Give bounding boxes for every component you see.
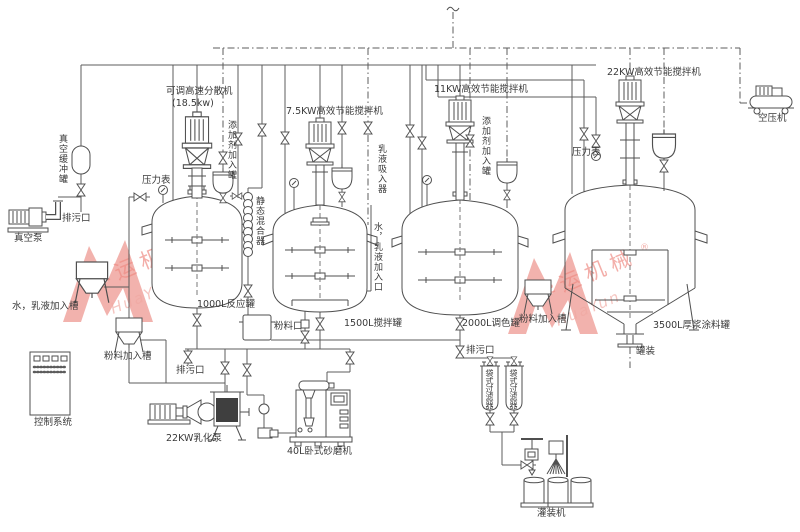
label-bag-filter-1: 袋式过滤器: [485, 369, 493, 409]
label-pressure-gauge-right: 压力表: [572, 148, 601, 159]
valve-icon: [244, 285, 252, 297]
control-panel: [30, 352, 70, 415]
valve-icon: [511, 357, 517, 365]
label-disperser-power: (18.5kw): [172, 99, 214, 110]
valve-icon: [221, 362, 229, 374]
valve-icon: [660, 160, 668, 172]
additive-vessel-3: [497, 158, 517, 183]
vent-break-icon: [447, 7, 459, 11]
drum: [524, 477, 544, 503]
label-air-compressor: 空压机: [758, 114, 787, 125]
valve-icon: [418, 137, 426, 149]
process-flow-diagram: 华运机械 ® HuaYun 华运机械 ® HuaYun: [0, 0, 800, 532]
label-powder-inlet: 粉料口: [274, 322, 303, 333]
air-compressor: [748, 86, 794, 114]
label-additive-vessel-3: 添加剂加入罐: [480, 116, 489, 176]
valve-icon: [406, 125, 414, 137]
label-emulsion-suction: 乳液吸入器: [376, 144, 385, 194]
valve-icon: [281, 132, 289, 144]
label-emulsify-pump: 22KW乳化泵: [166, 434, 222, 445]
valve-icon: [339, 192, 345, 202]
transfer-box: [239, 315, 275, 340]
valve-icon: [258, 124, 266, 136]
valve-icon: [504, 190, 510, 200]
label-filling-machine: 灌装机: [537, 509, 566, 520]
valve-icon: [316, 318, 324, 330]
label-water-emulsion-hopper: 水，乳液加入槽: [12, 302, 79, 313]
filling-machine: [521, 435, 593, 507]
valve-icon: [77, 184, 85, 196]
label-water-emulsion-inlet: 水，乳液加入口: [372, 222, 381, 292]
valve-icon: [184, 351, 192, 363]
drum: [548, 477, 568, 503]
valve-icon: [487, 357, 493, 365]
valve-icon: [456, 346, 464, 358]
watermark-reg: ®: [640, 243, 649, 253]
diagram-canvas: 华运机械 ® HuaYun 华运机械 ® HuaYun: [0, 0, 800, 532]
emulsify-pump: [148, 385, 249, 440]
label-static-mixer: 静态混合器: [254, 196, 263, 246]
vacuum-pump: [8, 201, 63, 232]
label-powder-hopper-right: 粉料加入槽: [519, 315, 567, 326]
valve-icon: [346, 352, 354, 364]
pressure-gauge-icon: [290, 179, 299, 188]
valve-icon: [232, 193, 242, 199]
label-control-system: 控制系统: [34, 418, 72, 429]
valve-icon: [364, 122, 372, 134]
label-canning: 罐装: [636, 347, 655, 358]
drum: [571, 477, 591, 503]
label-mixer-22kw: 22KW高效节能搅拌机: [607, 68, 701, 79]
valve-icon: [510, 413, 518, 425]
label-tank-1000l: 1000L反应罐: [197, 300, 255, 311]
mixer-motor-22kw: [616, 76, 644, 185]
pressure-gauge-icon: [423, 176, 432, 185]
label-tank-2000l: 2000L调色罐: [462, 319, 520, 330]
additive-vessel-2: [332, 164, 352, 189]
valve-icon: [193, 314, 201, 326]
label-pressure-gauge-left: 压力表: [142, 176, 171, 187]
valve-icon: [134, 193, 146, 201]
label-mixer-11kw: 11KW高效节能搅拌机: [434, 85, 528, 96]
powder-hopper-left: [115, 318, 143, 352]
label-mixer-7-5kw: 7.5KW高效节能搅拌机: [286, 107, 383, 118]
valve-icon: [220, 193, 226, 203]
label-bag-filter-2: 袋式过滤器: [509, 369, 517, 409]
label-additive-vessel-1: 添加剂加入罐: [226, 120, 235, 180]
label-powder-hopper-left: 粉料加入槽: [104, 352, 152, 363]
static-mixer: [244, 193, 253, 257]
label-vacuum-pump: 真空泵: [14, 234, 43, 245]
label-drain-mid: 排污口: [176, 366, 205, 377]
label-drain-left: 排污口: [62, 214, 91, 225]
mill-feed-pump: [258, 404, 278, 438]
additive-vessel-4: [653, 129, 676, 158]
valve-icon: [580, 128, 588, 140]
valve-icon: [521, 461, 533, 469]
label-disperser: 可调高速分散机: [166, 87, 233, 98]
label-tank-3500l: 3500L厚浆涂料罐: [653, 321, 730, 332]
disperser-motor: [182, 112, 211, 198]
sand-mill: [290, 381, 352, 446]
valve-icon: [486, 413, 494, 425]
label-vacuum-buffer-tank: 真空缓冲罐: [57, 134, 66, 184]
label-tank-1500l: 1500L搅拌罐: [344, 319, 402, 330]
valve-icon: [592, 135, 600, 147]
valve-icon: [338, 122, 346, 134]
vacuum-buffer-tank: [72, 146, 90, 174]
label-drain-right: 排污口: [466, 346, 495, 357]
valve-icon: [243, 364, 251, 376]
mixer-motor-7-5kw: [306, 118, 334, 205]
label-sand-mill: 40L卧式砂磨机: [287, 447, 352, 458]
